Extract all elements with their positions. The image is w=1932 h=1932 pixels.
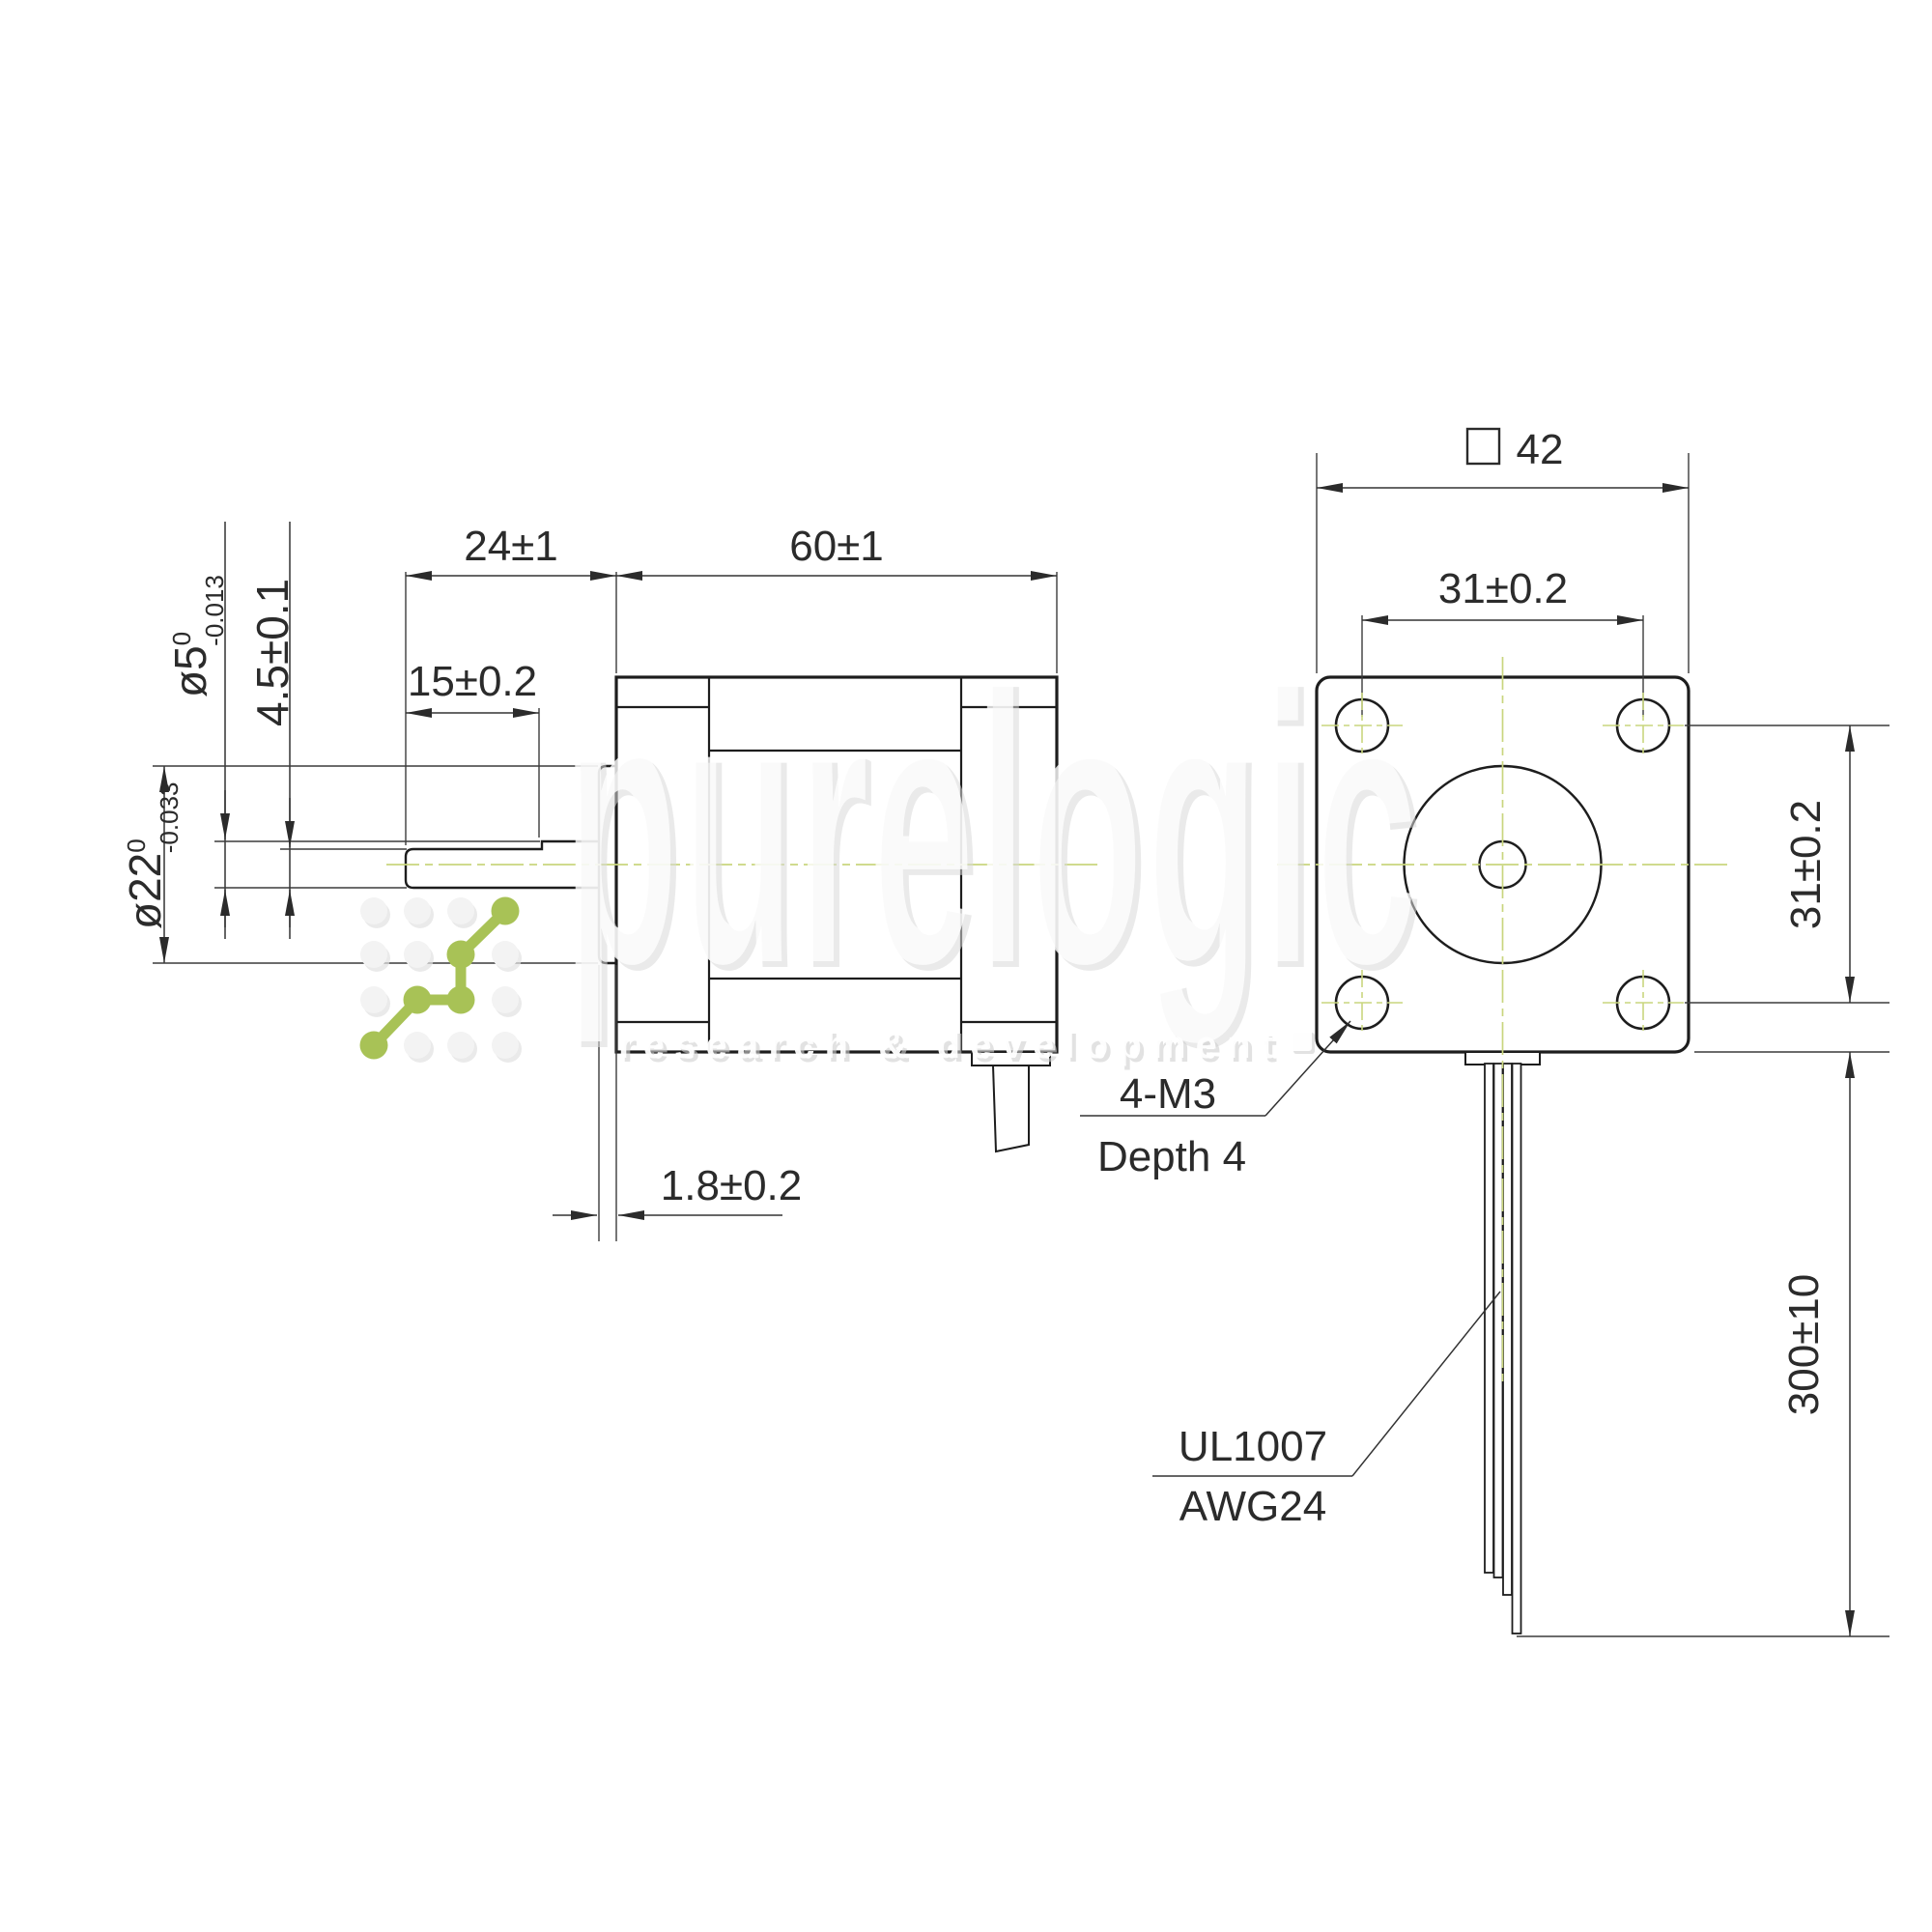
dim-pilot-dia-label: ø220-0.033 [120, 782, 184, 929]
wire-4 [1513, 1064, 1521, 1634]
ext-lines-wire [1517, 1052, 1889, 1636]
wire-stub-side [993, 1065, 1029, 1151]
dim-square-size: 42 [1517, 426, 1564, 473]
motor-dimension-drawing: 24±1 60±1 15±0.2 ø50-0.013 4.5±0.1 ø220-… [0, 0, 1932, 1932]
dim-hole-spacing-h: 31±0.2 [1438, 565, 1568, 612]
wire-label-line1: UL1007 [1179, 1423, 1327, 1470]
logo-zigzag-links [374, 911, 505, 1045]
dim-shaft-dia-label: ø50-0.013 [165, 575, 229, 697]
tagline-square-icon [1291, 1030, 1312, 1051]
dim-flat-length: 15±0.2 [408, 658, 537, 705]
wire-leader [1352, 1292, 1500, 1476]
dim-shaft-length: 24±1 [464, 523, 558, 570]
dim-pilot-depth: 1.8±0.2 [661, 1162, 802, 1209]
dim-wire-length: 300±10 [1780, 1274, 1828, 1416]
mount-holes-label-line1: 4-M3 [1120, 1070, 1216, 1118]
wire-1 [1485, 1064, 1493, 1573]
drawing-page: 24±1 60±1 15±0.2 ø50-0.013 4.5±0.1 ø220-… [0, 0, 1932, 1932]
dim-hole-spacing-v: 31±0.2 [1782, 800, 1830, 929]
square-symbol-icon [1467, 429, 1499, 464]
brand-text: purelogic [562, 611, 1417, 1046]
wire-2 [1494, 1064, 1503, 1577]
dim-flat-height-label: 4.5±0.1 [247, 579, 298, 726]
wire-label-line2: AWG24 [1179, 1483, 1326, 1530]
mount-holes-label-line2: Depth 4 [1097, 1133, 1246, 1180]
wire-3 [1503, 1064, 1512, 1595]
tagline-text: research & development [618, 1024, 1275, 1066]
dim-body-length: 60±1 [789, 523, 884, 570]
